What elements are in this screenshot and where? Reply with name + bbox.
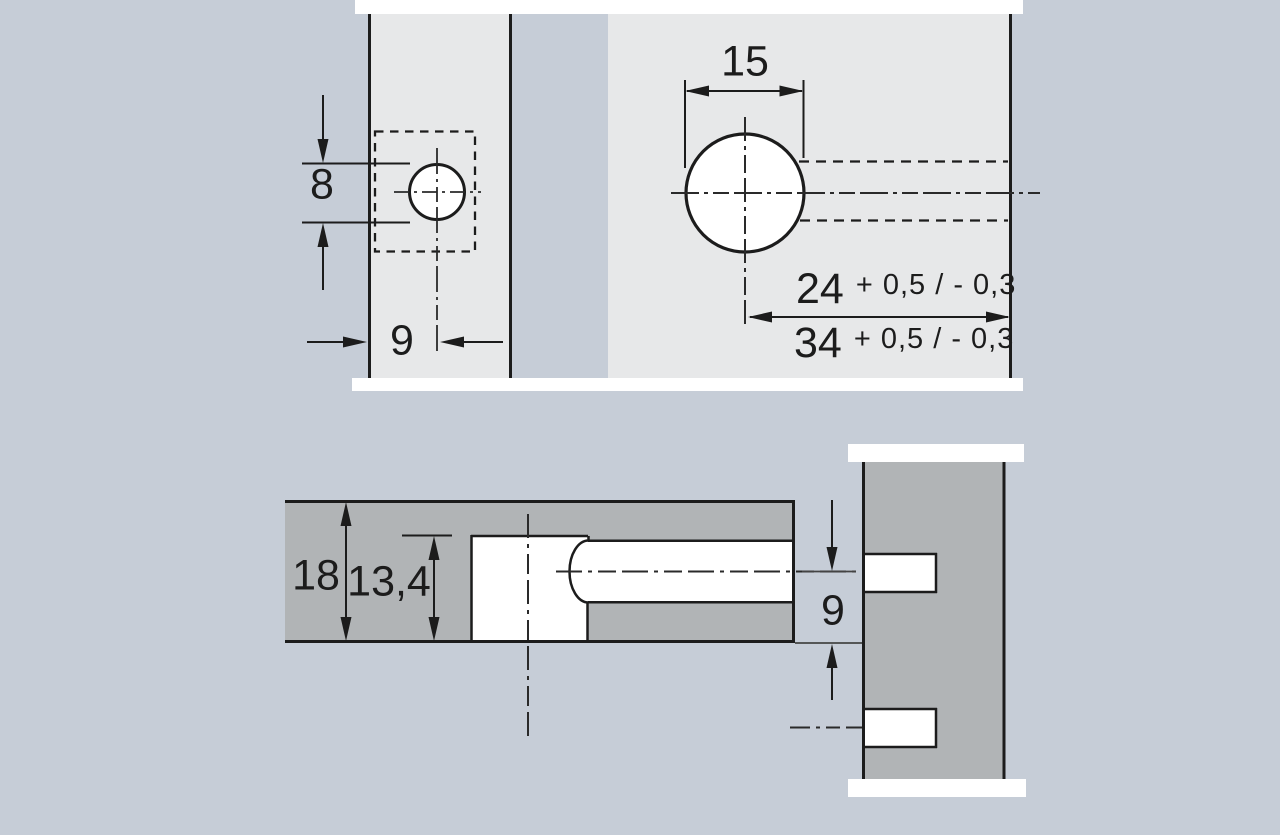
dim-34-tolerance: + 0,5 / - 0,3 [854,325,1015,354]
side-panel-bottom-break-bar [848,779,1026,797]
drawing-canvas: 8 9 15 24 + 0,5 / - 0,3 34 + 0,5 / - 0,3… [0,0,1280,835]
dim-9-section-label: 9 [821,590,845,633]
lower-slot-cavity [863,709,936,748]
dim-24-label: 24 + 0,5 / - 0,3 [796,268,1016,311]
dim-18-label: 18 [292,555,340,598]
technical-drawing [0,0,1280,835]
top-break-bar [355,0,1023,14]
dim-24-value: 24 [796,268,844,311]
dim-34-label: 34 + 0,5 / - 0,3 [794,322,1014,365]
dim-24-tolerance: + 0,5 / - 0,3 [856,271,1017,300]
section-view [285,444,1026,797]
upper-slot-cavity [863,554,936,593]
hole-15-cavity [471,535,588,642]
bottom-break-bar [352,378,1023,391]
dim-13-4-label: 13,4 [347,561,431,604]
dim-8-label: 8 [310,164,334,207]
dim-9-top-label: 9 [390,320,414,363]
dim-34-value: 34 [794,322,842,365]
dim-15-label: 15 [721,41,769,84]
side-panel-top-break-bar [848,444,1024,462]
